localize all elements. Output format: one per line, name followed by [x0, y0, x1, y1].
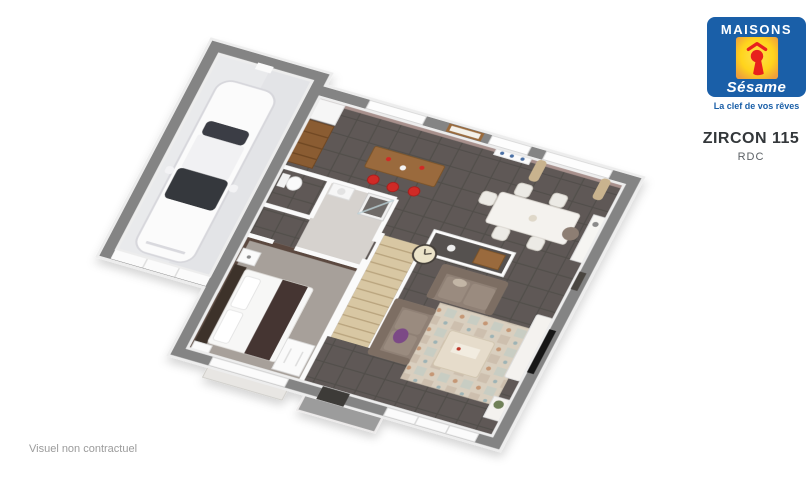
- maisons-sesame-logo: MAISONS Sésame: [707, 17, 806, 97]
- keyhole-icon: [735, 36, 779, 80]
- brand-script-name: Sésame: [727, 80, 787, 95]
- plan-title-block: ZIRCON 115 RDC: [692, 130, 810, 163]
- brand-tagline: La clef de vos rêves: [700, 101, 811, 111]
- plan-level-label: RDC: [692, 151, 810, 163]
- plan-model-name: ZIRCON 115: [692, 130, 810, 148]
- brand-wordmark: MAISONS: [721, 23, 792, 36]
- page: MAISONS Sésame La clef de vos rêves ZIRC…: [0, 0, 811, 480]
- floorplan-render: [0, 0, 811, 480]
- disclaimer-note: Visuel non contractuel: [29, 443, 137, 455]
- plan-projection-group: [60, 46, 641, 464]
